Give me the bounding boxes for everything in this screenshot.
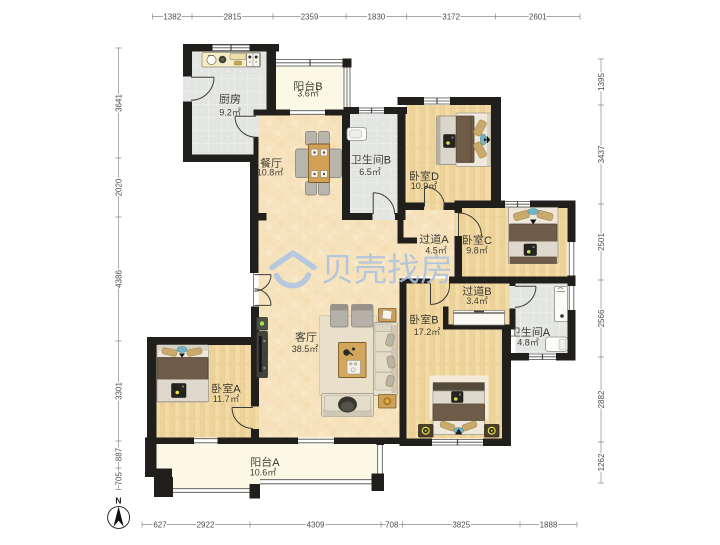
svg-text:2601: 2601 [529,12,547,21]
svg-text:627: 627 [153,520,167,529]
svg-text:3641: 3641 [114,94,123,112]
svg-text:11.7: 11.7 [213,394,230,404]
svg-text:1888: 1888 [540,520,558,529]
svg-text:3172: 3172 [442,12,460,21]
svg-text:887: 887 [114,447,123,461]
svg-text:2922: 2922 [197,520,215,529]
svg-text:2815: 2815 [224,12,242,21]
svg-text:2020: 2020 [114,178,123,196]
svg-text:3.4: 3.4 [466,296,479,306]
svg-text:6.5: 6.5 [359,167,372,177]
svg-text:3437: 3437 [597,145,606,163]
svg-text:B: B [384,155,391,167]
svg-text:2501: 2501 [597,233,606,251]
svg-text:N: N [115,496,121,506]
svg-text:3301: 3301 [114,382,123,400]
svg-text:17.2: 17.2 [414,327,432,337]
svg-text:4.8: 4.8 [517,338,530,348]
svg-text:1830: 1830 [367,12,385,21]
svg-text:2566: 2566 [597,309,606,327]
svg-text:2359: 2359 [301,12,319,21]
svg-text:9.2: 9.2 [219,108,232,118]
svg-text:A: A [272,457,280,469]
svg-text:C: C [484,235,492,247]
svg-text:38.5: 38.5 [292,344,310,354]
svg-text:3825: 3825 [452,520,470,529]
svg-text:3.6: 3.6 [297,89,310,99]
svg-text:A: A [543,327,551,339]
svg-text:4386: 4386 [114,270,123,288]
svg-text:B: B [431,315,438,327]
svg-text:4.5: 4.5 [425,246,438,256]
svg-text:705: 705 [114,472,123,486]
svg-text:B: B [484,286,491,298]
svg-text:10.9: 10.9 [411,181,429,191]
svg-text:9.8: 9.8 [466,246,479,256]
svg-text:10.6: 10.6 [250,468,268,478]
svg-text:708: 708 [385,520,399,529]
svg-text:1382: 1382 [163,12,181,21]
svg-text:2882: 2882 [597,390,606,408]
svg-text:1395: 1395 [597,73,606,91]
svg-text:1262: 1262 [597,453,606,471]
svg-text:4309: 4309 [307,520,325,529]
svg-text:A: A [233,384,241,396]
svg-text:A: A [441,234,449,246]
svg-text:10.8: 10.8 [257,168,275,178]
svg-text:D: D [431,171,439,183]
